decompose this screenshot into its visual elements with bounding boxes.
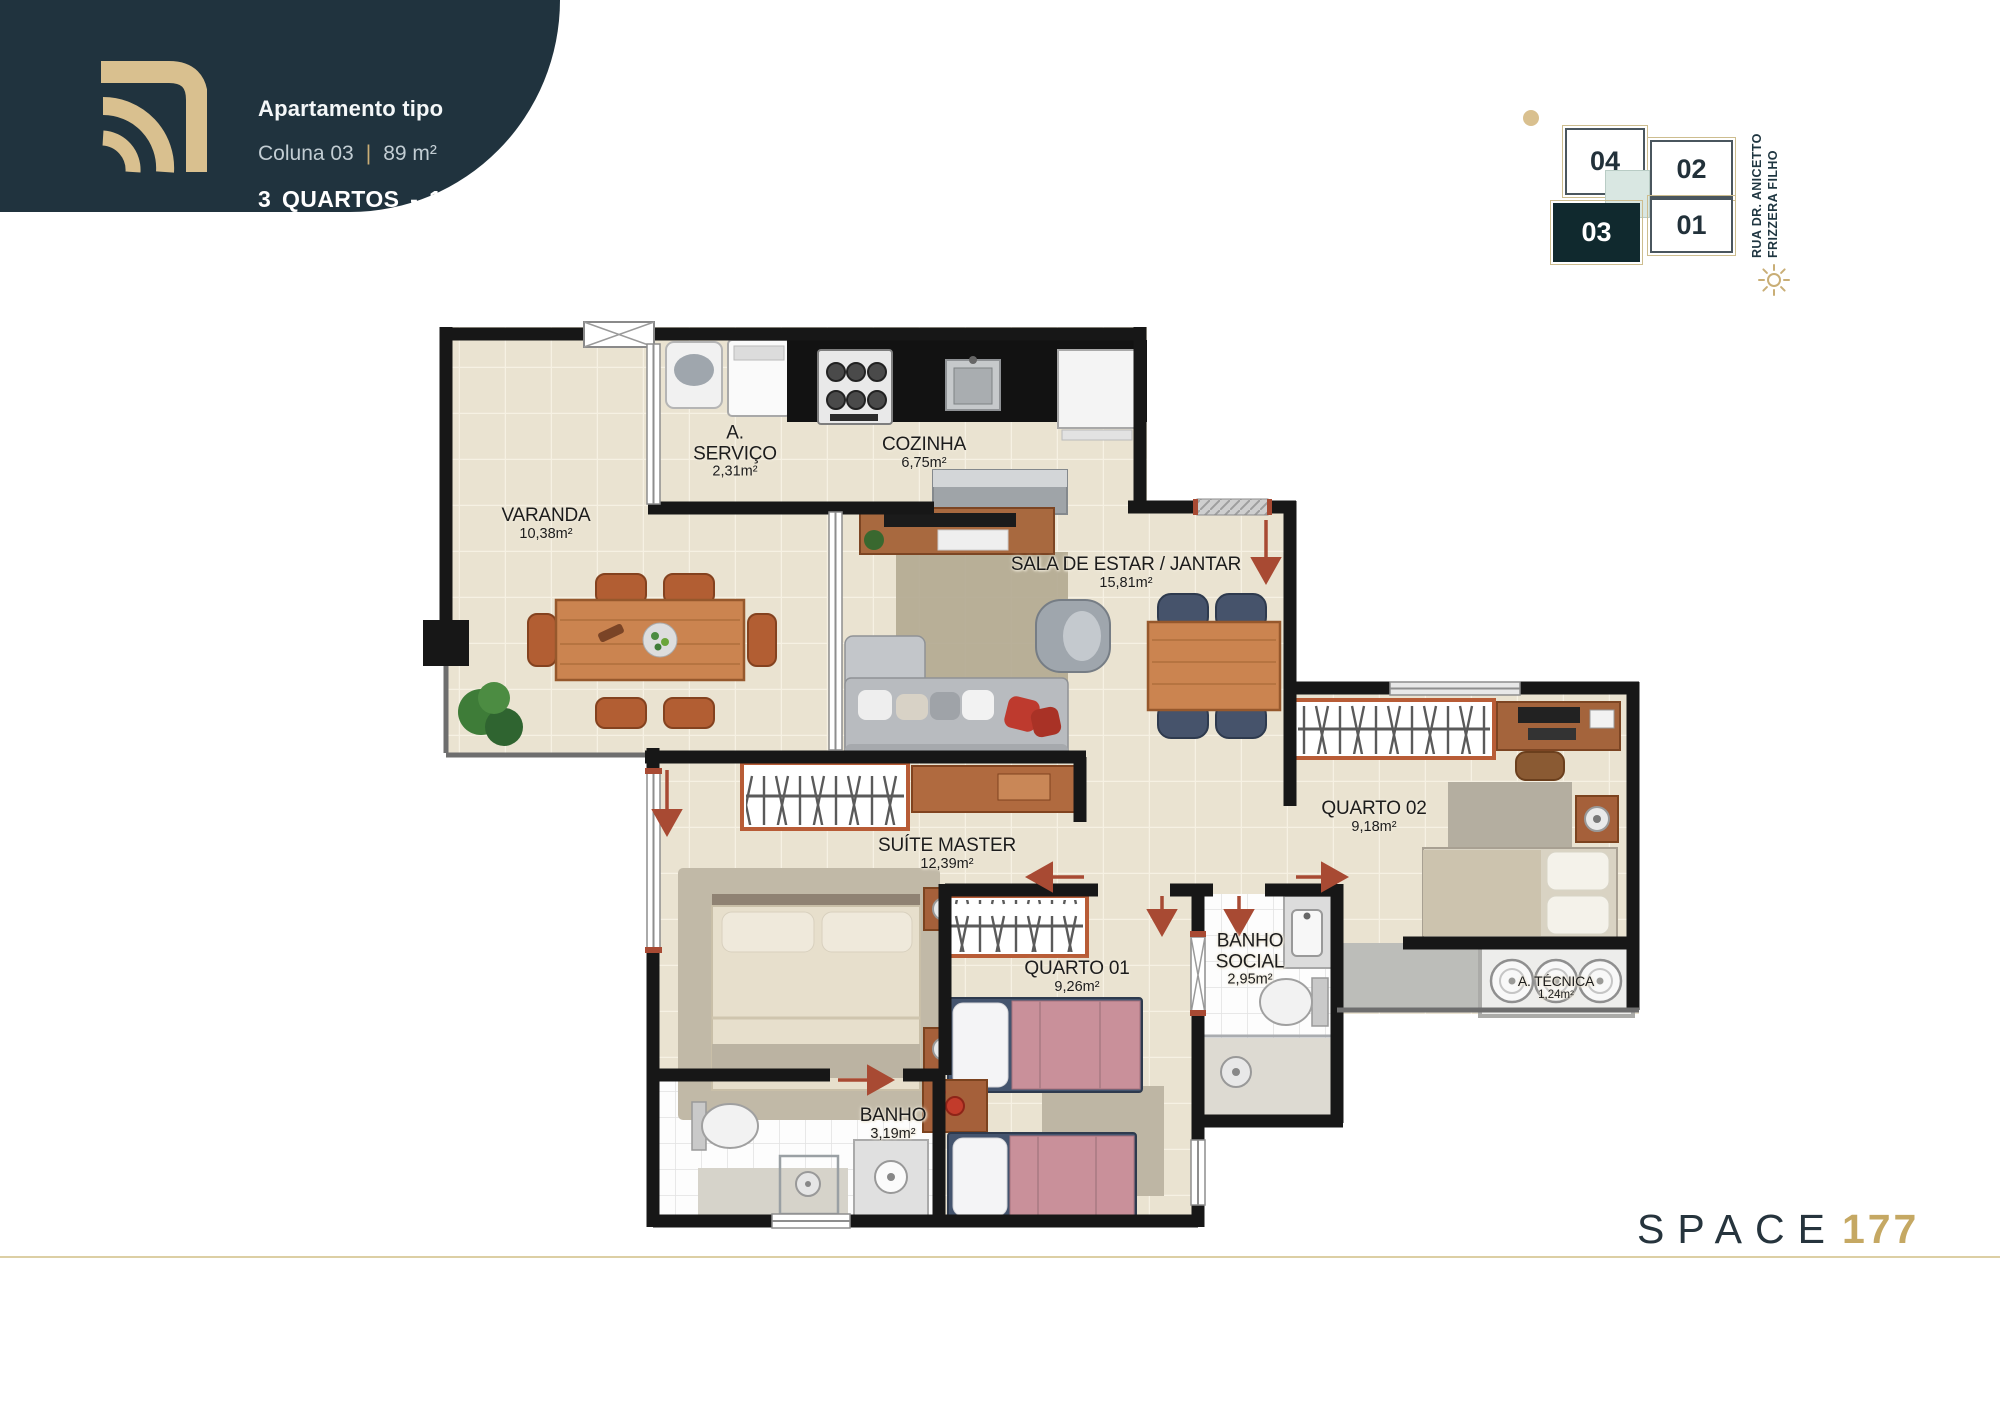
brand-name: SPACE <box>1637 1206 1838 1252</box>
room-label-varanda: VARANDA 10,38m² <box>501 506 590 542</box>
room-label-quarto01: QUARTO 01 9,26m² <box>1024 959 1129 995</box>
room-label-servico: A. SERVIÇO 2,31m² <box>685 424 785 481</box>
floorplan-page: { "header": { "title": "Apartamento tipo… <box>0 0 2000 1414</box>
room-label-banho: BANHO 3,19m² <box>860 1106 927 1142</box>
brand-number: 177 <box>1842 1206 1919 1252</box>
furniture-servico <box>666 340 790 416</box>
room-label-area-tecnica: A. TÉCNICA 1,24m² <box>1518 974 1594 1002</box>
room-label-suite: SUÍTE MASTER 12,39m² <box>878 836 1016 872</box>
room-label-cozinha: COZINHA 6,75m² <box>882 435 966 471</box>
footer-rule <box>0 1256 2000 1258</box>
corridor-floor <box>1337 943 1483 1012</box>
pillar <box>423 620 469 666</box>
entry-door-leaf <box>1197 499 1268 515</box>
footer-brand: SPACE177 <box>1637 1206 1919 1253</box>
floor-plan <box>0 0 2000 1414</box>
room-label-sala: SALA DE ESTAR / JANTAR 15,81m² <box>916 555 1336 591</box>
room-label-banho-social: BANHO SOCIAL 2,95m² <box>1200 932 1300 989</box>
room-label-quarto02: QUARTO 02 9,18m² <box>1321 799 1426 835</box>
